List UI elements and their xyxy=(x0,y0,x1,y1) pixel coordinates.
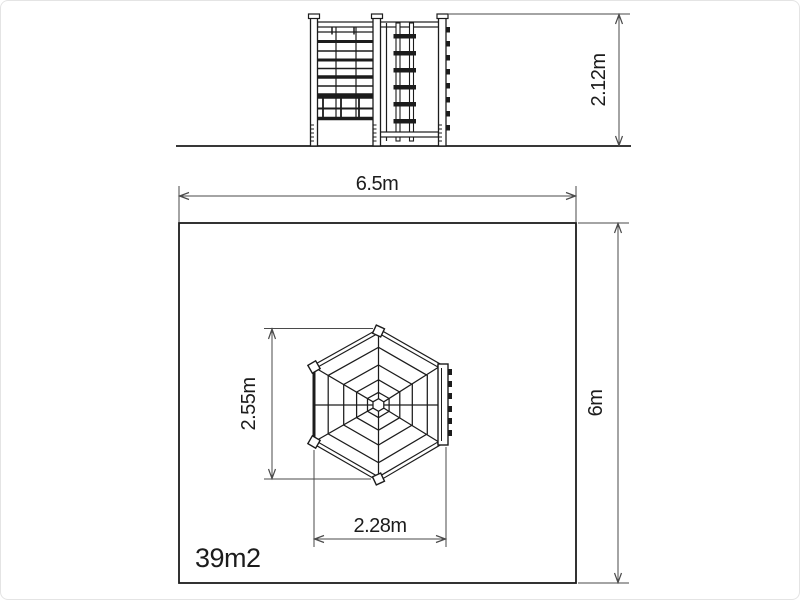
posts xyxy=(309,14,449,146)
dim-label-equipment-depth: 2.55m xyxy=(238,377,260,430)
dim-label-elevation-height: 2.12m xyxy=(588,53,610,106)
climbing-panel xyxy=(438,364,452,445)
dim-label-equipment-width: 2.28m xyxy=(353,515,406,537)
technical-drawing: 2.12m 6.5m 6m xyxy=(1,1,800,600)
plan-view: 6.5m 6m xyxy=(179,173,629,583)
ladder-section xyxy=(380,23,439,141)
dimension-area-depth: 6m xyxy=(578,223,629,583)
left-climbing-bay xyxy=(318,27,374,120)
elevation-view: 2.12m xyxy=(176,14,631,146)
dim-label-area-depth: 6m xyxy=(585,390,607,417)
area-label: 39m2 xyxy=(195,543,261,573)
dimension-elevation-height: 2.12m xyxy=(448,14,630,146)
dimension-equipment-depth: 2.55m xyxy=(238,329,373,480)
drawing-canvas: 2.12m 6.5m 6m xyxy=(0,0,800,600)
dimension-area-width: 6.5m xyxy=(179,173,576,222)
dim-label-area-width: 6.5m xyxy=(356,173,398,195)
spider-web-climber xyxy=(308,325,452,485)
